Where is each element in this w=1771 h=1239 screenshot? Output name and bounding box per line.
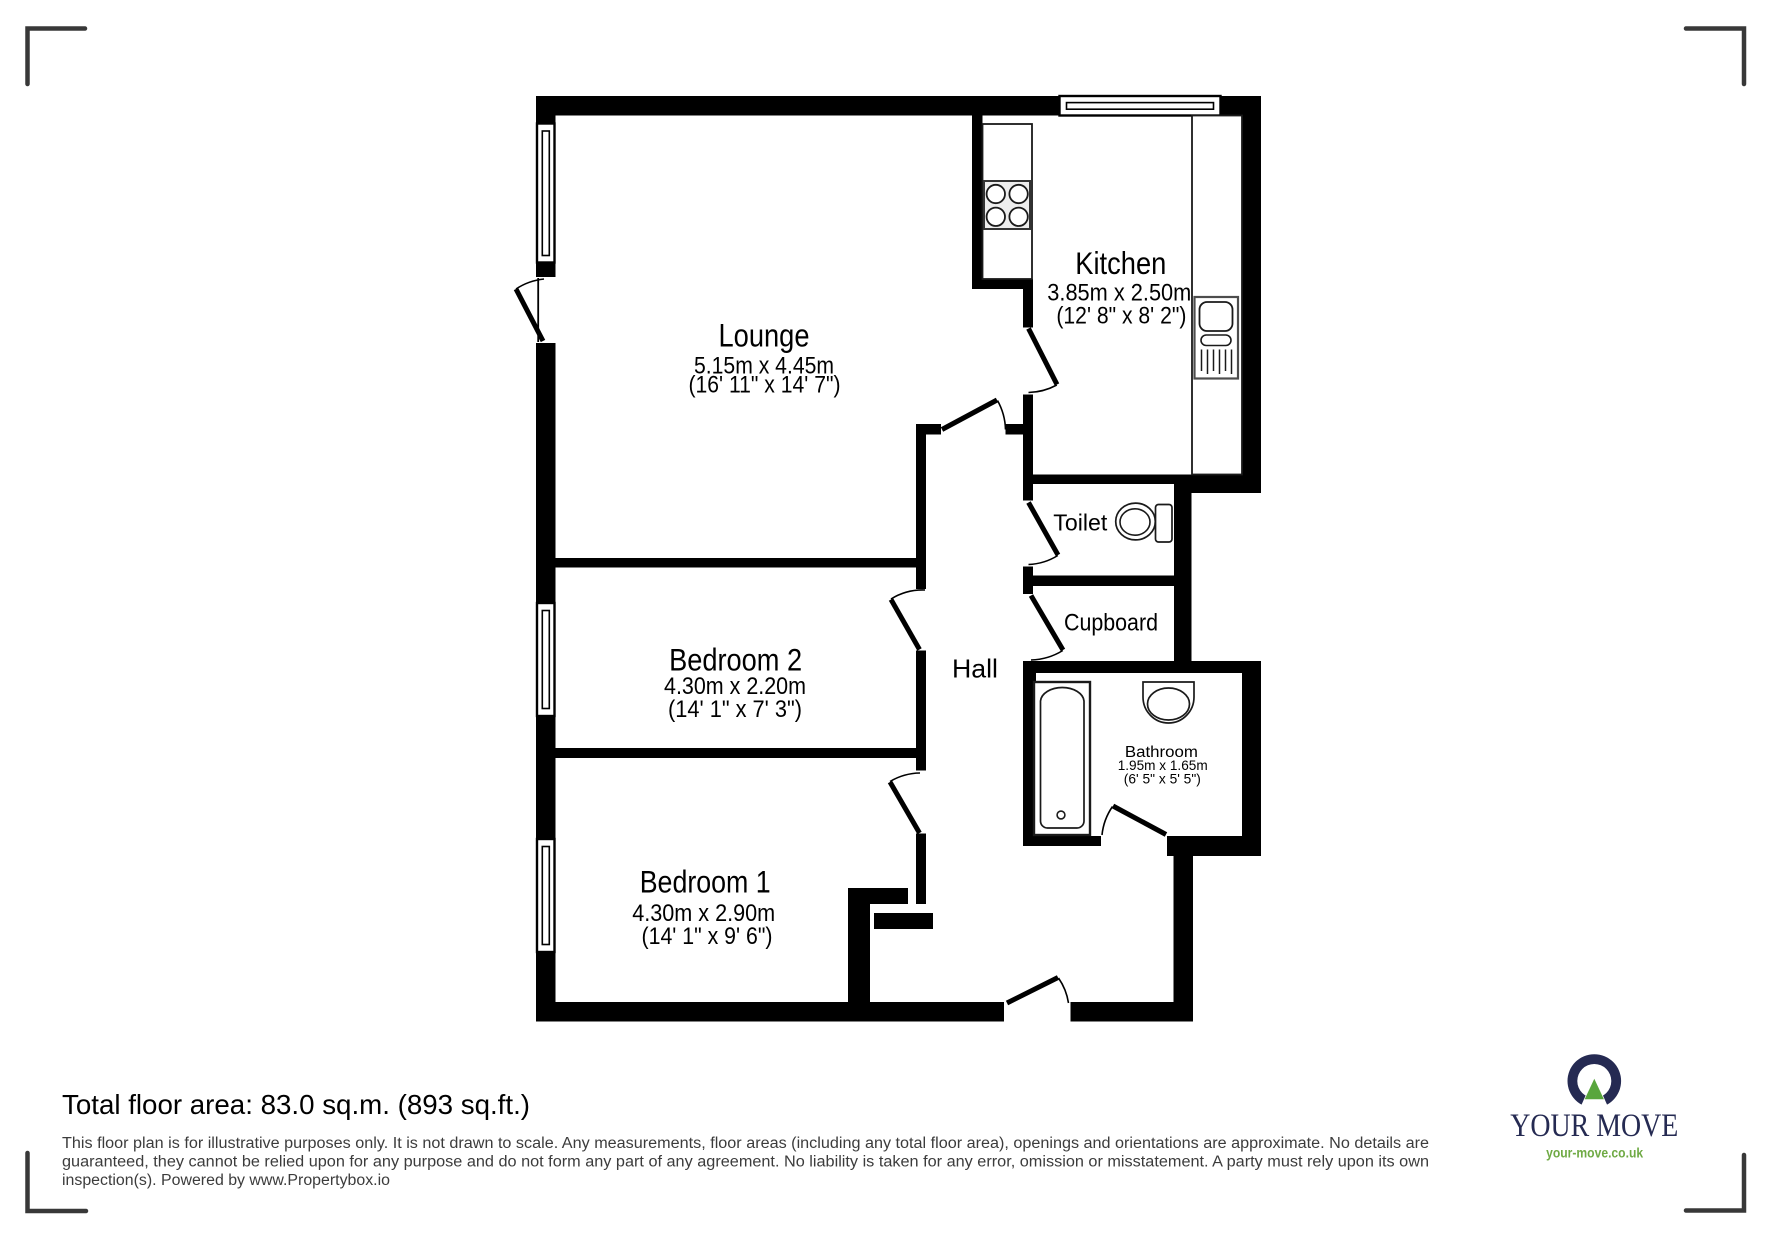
svg-text:guaranteed, they cannot be rel: guaranteed, they cannot be relied upon f… — [62, 1154, 1429, 1171]
svg-text:Lounge: Lounge — [719, 318, 810, 354]
svg-text:Bedroom 1: Bedroom 1 — [640, 864, 771, 900]
svg-text:Total floor area: 83.0 sq.m. (: Total floor area: 83.0 sq.m. (893 sq.ft.… — [62, 1089, 530, 1120]
svg-text:Kitchen: Kitchen — [1075, 245, 1166, 281]
svg-text:Bedroom 2: Bedroom 2 — [669, 641, 802, 677]
svg-text:Hall: Hall — [952, 654, 998, 684]
svg-text:Toilet: Toilet — [1053, 510, 1108, 536]
svg-text:(14' 1" x 7' 3"): (14' 1" x 7' 3") — [668, 696, 802, 723]
svg-text:(12' 8" x 8' 2"): (12' 8" x 8' 2") — [1056, 303, 1186, 330]
svg-text:inspection(s). Powered by www.: inspection(s). Powered by www.Propertybo… — [62, 1172, 390, 1189]
svg-text:YOUR MOVE: YOUR MOVE — [1510, 1108, 1678, 1144]
svg-text:(14' 1" x 9' 6"): (14' 1" x 9' 6") — [642, 923, 773, 950]
svg-text:(16' 11" x 14' 7"): (16' 11" x 14' 7") — [689, 372, 841, 399]
svg-text:your-move.co.uk: your-move.co.uk — [1546, 1145, 1643, 1160]
svg-text:This floor plan is for illustr: This floor plan is for illustrative purp… — [62, 1135, 1429, 1152]
svg-text:(6' 5" x 5' 5"): (6' 5" x 5' 5") — [1124, 771, 1201, 787]
svg-text:Cupboard: Cupboard — [1064, 610, 1158, 637]
